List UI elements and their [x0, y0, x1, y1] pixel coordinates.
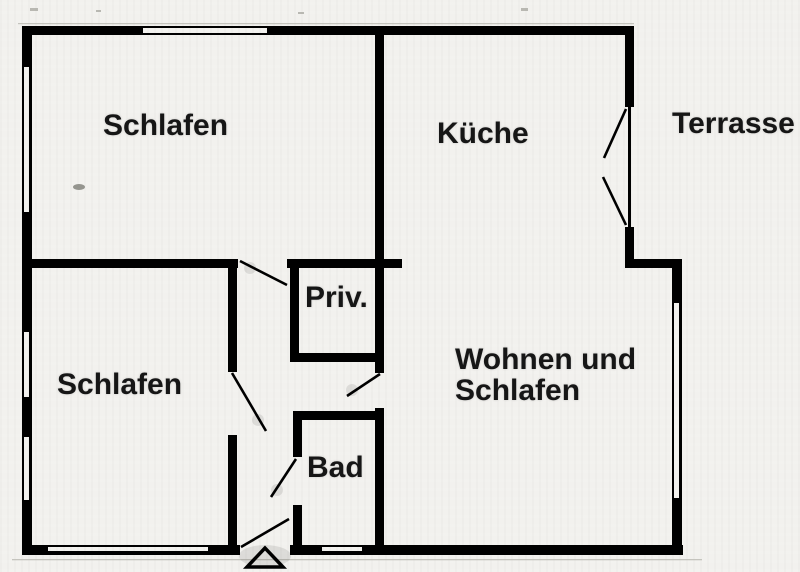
scan-speck — [96, 10, 101, 12]
window-top-icon — [143, 26, 267, 28]
interior-wall-hall-left — [228, 259, 237, 545]
scan-hairline-bottom — [12, 559, 702, 560]
scan-speck — [298, 12, 304, 14]
window-left-lower-icon — [22, 437, 24, 500]
room-label-private: Priv. — [305, 282, 368, 313]
room-label-terrace: Terrasse — [672, 108, 795, 139]
scan-hairline-top — [18, 23, 634, 24]
terrace-door-leaf-bottom — [603, 177, 626, 225]
window-left-middle-icon — [22, 332, 24, 397]
outer-wall-bottom — [22, 545, 683, 555]
room-label-bedroom-top: Schlafen — [103, 110, 228, 141]
window-living-icon — [672, 303, 674, 498]
scan-speck — [30, 8, 38, 11]
scan-mark-bedroom — [73, 184, 85, 190]
outer-wall-right-kitchen — [603, 26, 634, 268]
door-bedroom-left-icon — [232, 373, 266, 431]
outer-wall-top — [22, 26, 634, 35]
outer-wall-left — [22, 26, 32, 555]
floor-plan: Schlafen Küche Terrasse Priv. Schlafen B… — [0, 0, 800, 572]
room-label-bedroom-left: Schlafen — [57, 369, 182, 400]
window-left-upper-icon — [22, 67, 24, 212]
outer-wall-right-living — [672, 259, 682, 555]
door-bathroom-icon — [271, 459, 296, 497]
scan-speck — [521, 8, 528, 11]
interior-wall-hall-top — [22, 259, 402, 268]
interior-wall-center-vertical — [375, 30, 384, 545]
window-bottom-left-icon — [48, 545, 208, 547]
room-label-kitchen: Küche — [437, 118, 529, 149]
room-label-living: Wohnen und Schlafen — [455, 344, 647, 406]
door-entrance-icon — [241, 519, 289, 547]
terrace-door-frame — [628, 107, 631, 227]
terrace-door-leaf-top — [604, 109, 626, 158]
window-bathroom-icon — [322, 545, 362, 547]
room-label-bathroom: Bad — [307, 452, 364, 483]
floor-plan-drawing — [0, 0, 800, 572]
